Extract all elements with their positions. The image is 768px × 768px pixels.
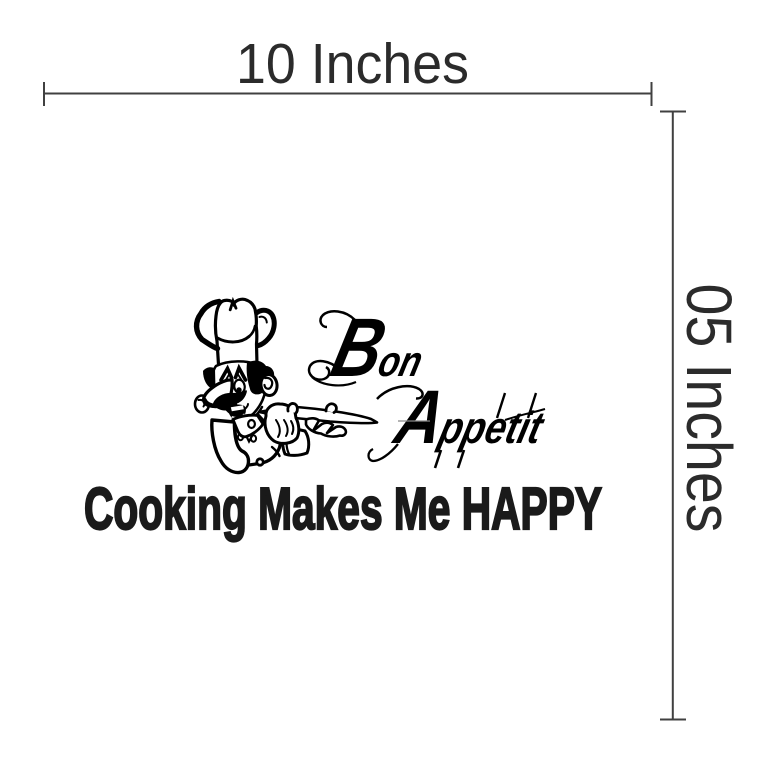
svg-text:10 Inches: 10 Inches xyxy=(236,32,469,96)
svg-text:Cooking Makes Me HAPPY: Cooking Makes Me HAPPY xyxy=(84,476,602,542)
svg-text:05 Inches: 05 Inches xyxy=(673,284,745,533)
